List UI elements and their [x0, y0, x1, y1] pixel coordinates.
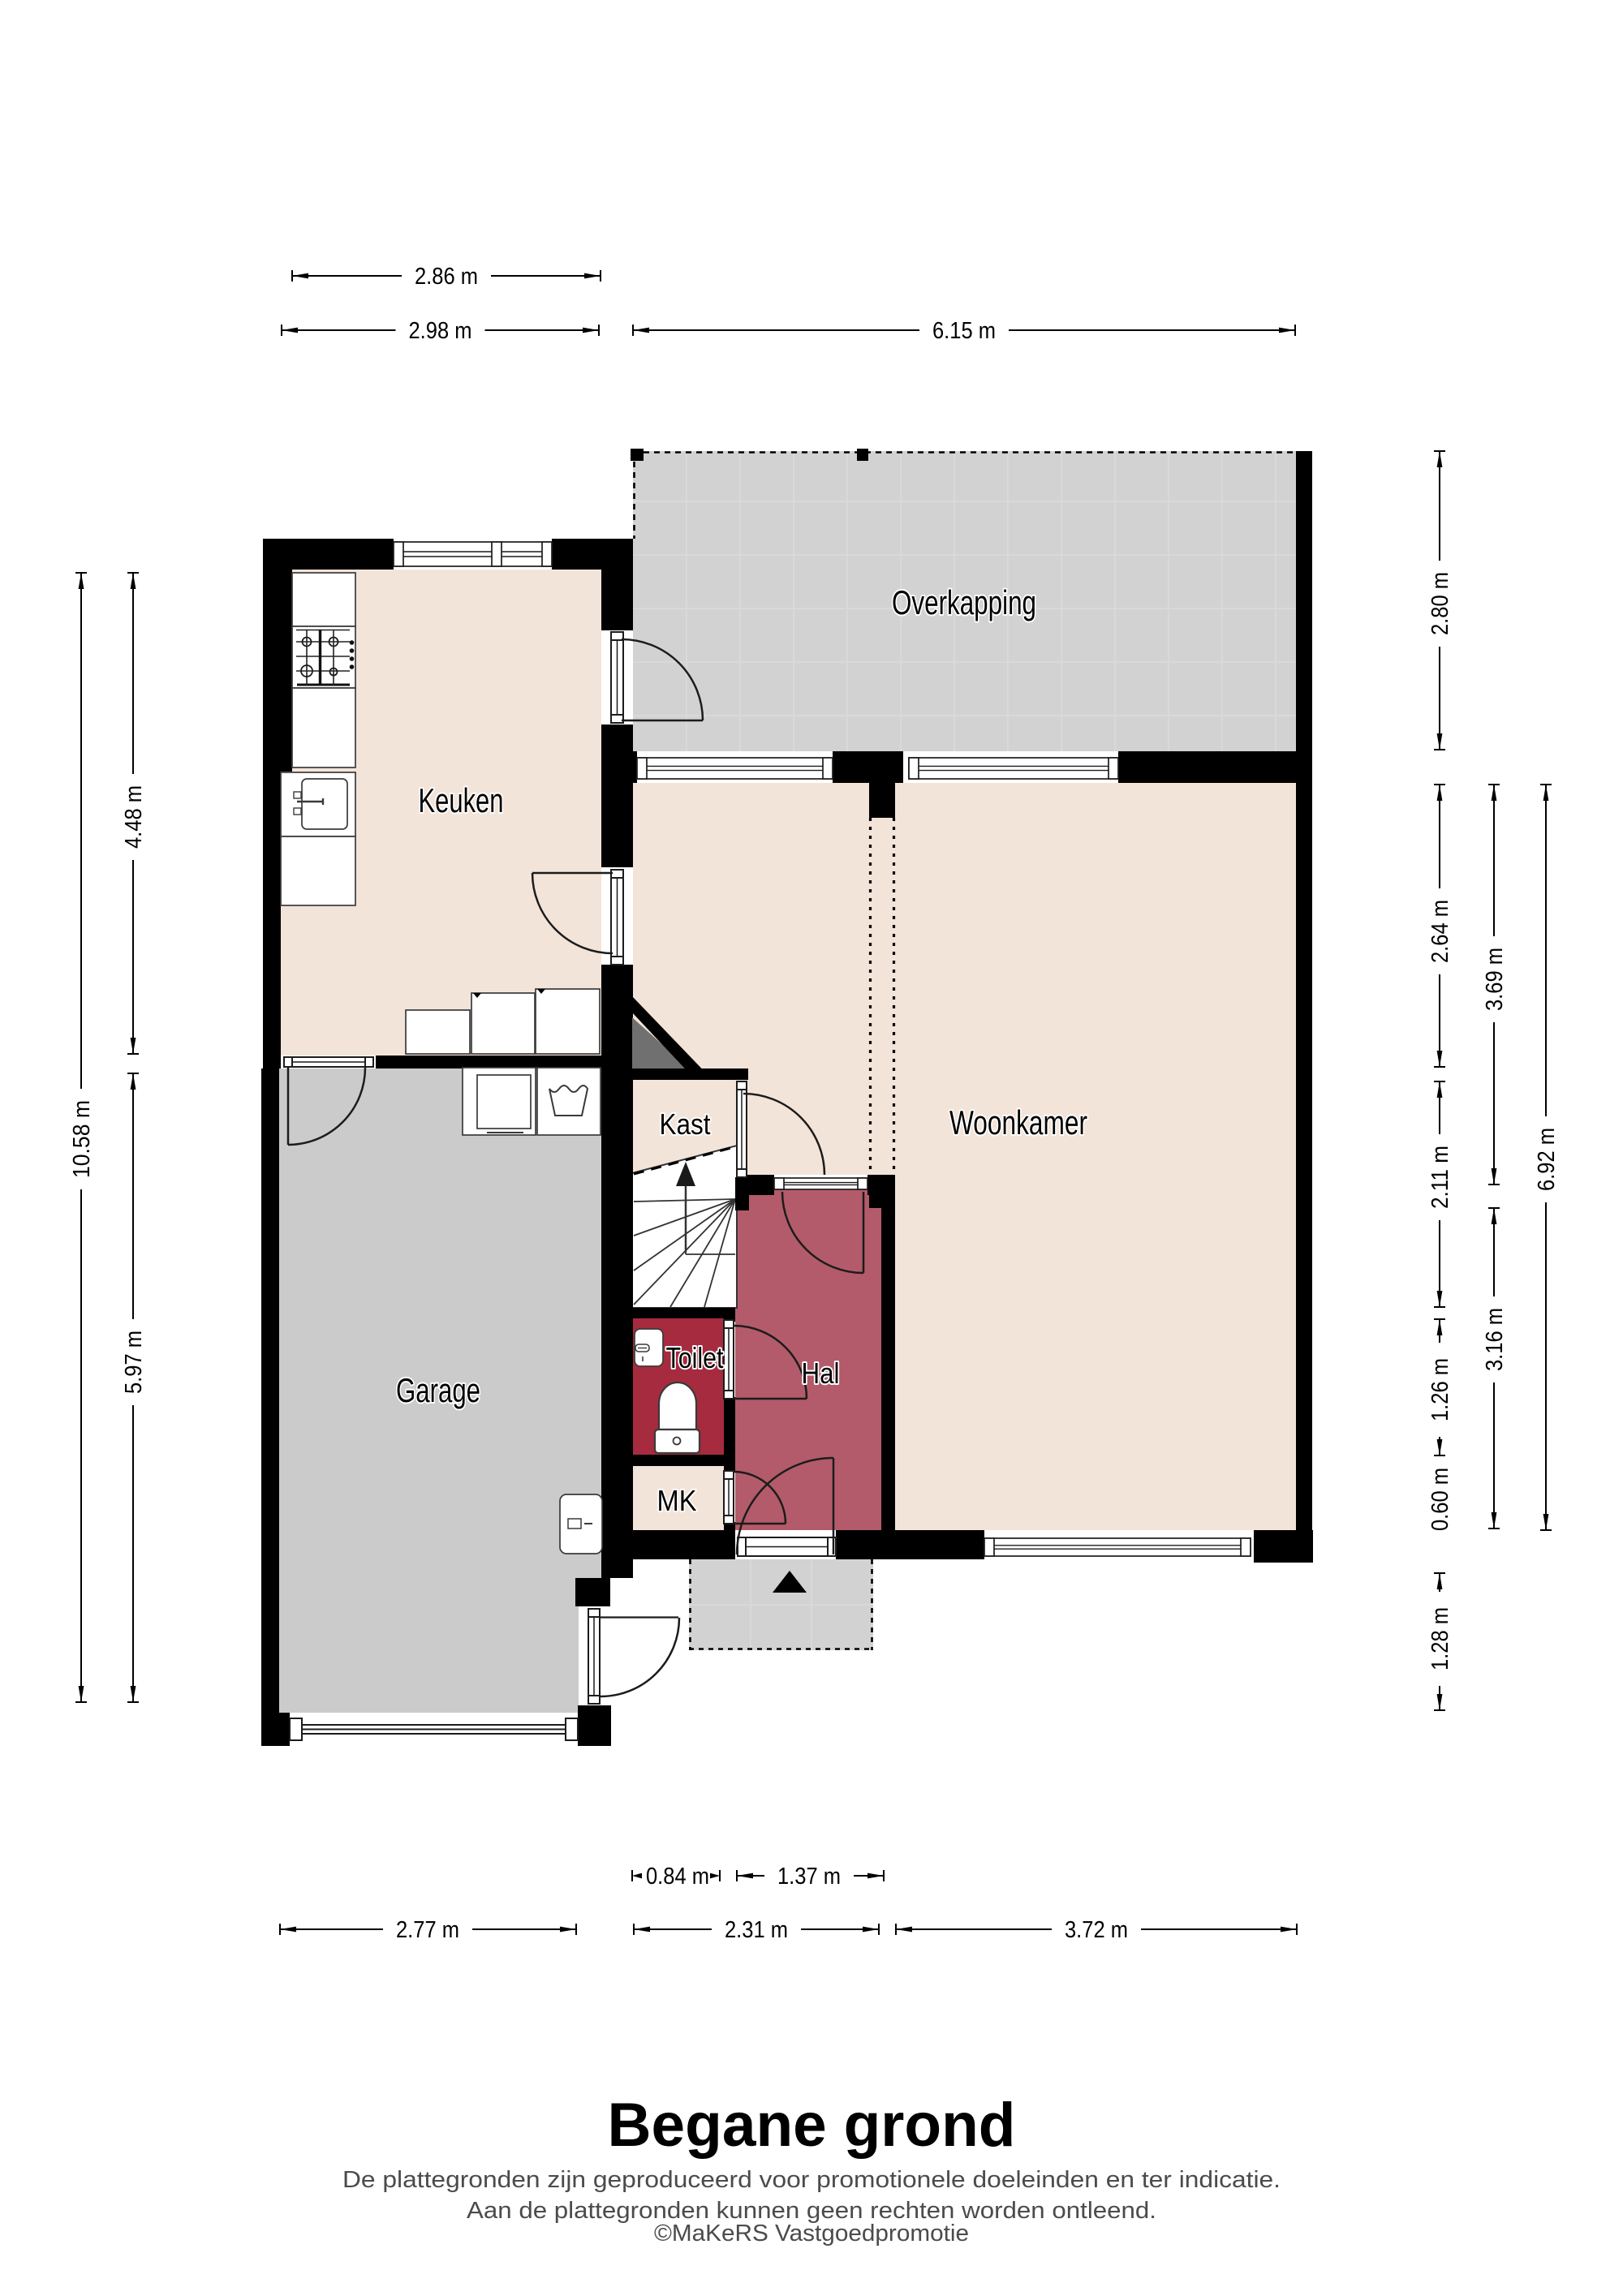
svg-text:1.37 m: 1.37 m [777, 1864, 841, 1890]
svg-text:2.77 m: 2.77 m [396, 1917, 459, 1943]
svg-text:Toilet: Toilet [666, 1341, 724, 1374]
svg-text:2.80 m: 2.80 m [1427, 572, 1453, 635]
svg-text:Hal: Hal [802, 1357, 840, 1390]
svg-text:De plattegronden zijn geproduc: De plattegronden zijn geproduceerd voor … [342, 2167, 1281, 2193]
svg-text:3.16 m: 3.16 m [1482, 1308, 1508, 1371]
svg-text:3.69 m: 3.69 m [1482, 948, 1508, 1011]
svg-text:6.15 m: 6.15 m [932, 318, 996, 344]
svg-text:5.97 m: 5.97 m [121, 1331, 147, 1394]
svg-text:10.58 m: 10.58 m [69, 1100, 95, 1178]
svg-text:©MaKeRS Vastgoedpromotie: ©MaKeRS Vastgoedpromotie [654, 2221, 969, 2247]
svg-text:2.64 m: 2.64 m [1427, 900, 1453, 963]
svg-text:Overkapping: Overkapping [892, 583, 1036, 621]
svg-text:2.31 m: 2.31 m [725, 1917, 788, 1943]
svg-text:0.60 m: 0.60 m [1427, 1468, 1453, 1531]
svg-text:Kast: Kast [660, 1107, 711, 1141]
svg-text:Woonkamer: Woonkamer [949, 1103, 1087, 1142]
svg-text:3.72 m: 3.72 m [1065, 1917, 1128, 1943]
svg-text:4.48 m: 4.48 m [121, 785, 147, 849]
svg-text:MK: MK [657, 1484, 697, 1517]
svg-text:Keuken: Keuken [419, 781, 504, 819]
svg-text:0.84 m: 0.84 m [646, 1864, 709, 1890]
svg-text:Garage: Garage [396, 1371, 480, 1409]
svg-text:6.92 m: 6.92 m [1534, 1128, 1560, 1191]
svg-text:2.11 m: 2.11 m [1427, 1146, 1453, 1209]
svg-text:2.86 m: 2.86 m [415, 264, 478, 290]
svg-text:1.28 m: 1.28 m [1427, 1607, 1453, 1670]
svg-text:1.26 m: 1.26 m [1427, 1358, 1453, 1421]
svg-text:2.98 m: 2.98 m [409, 318, 472, 344]
svg-text:Begane grond: Begane grond [608, 2091, 1016, 2160]
